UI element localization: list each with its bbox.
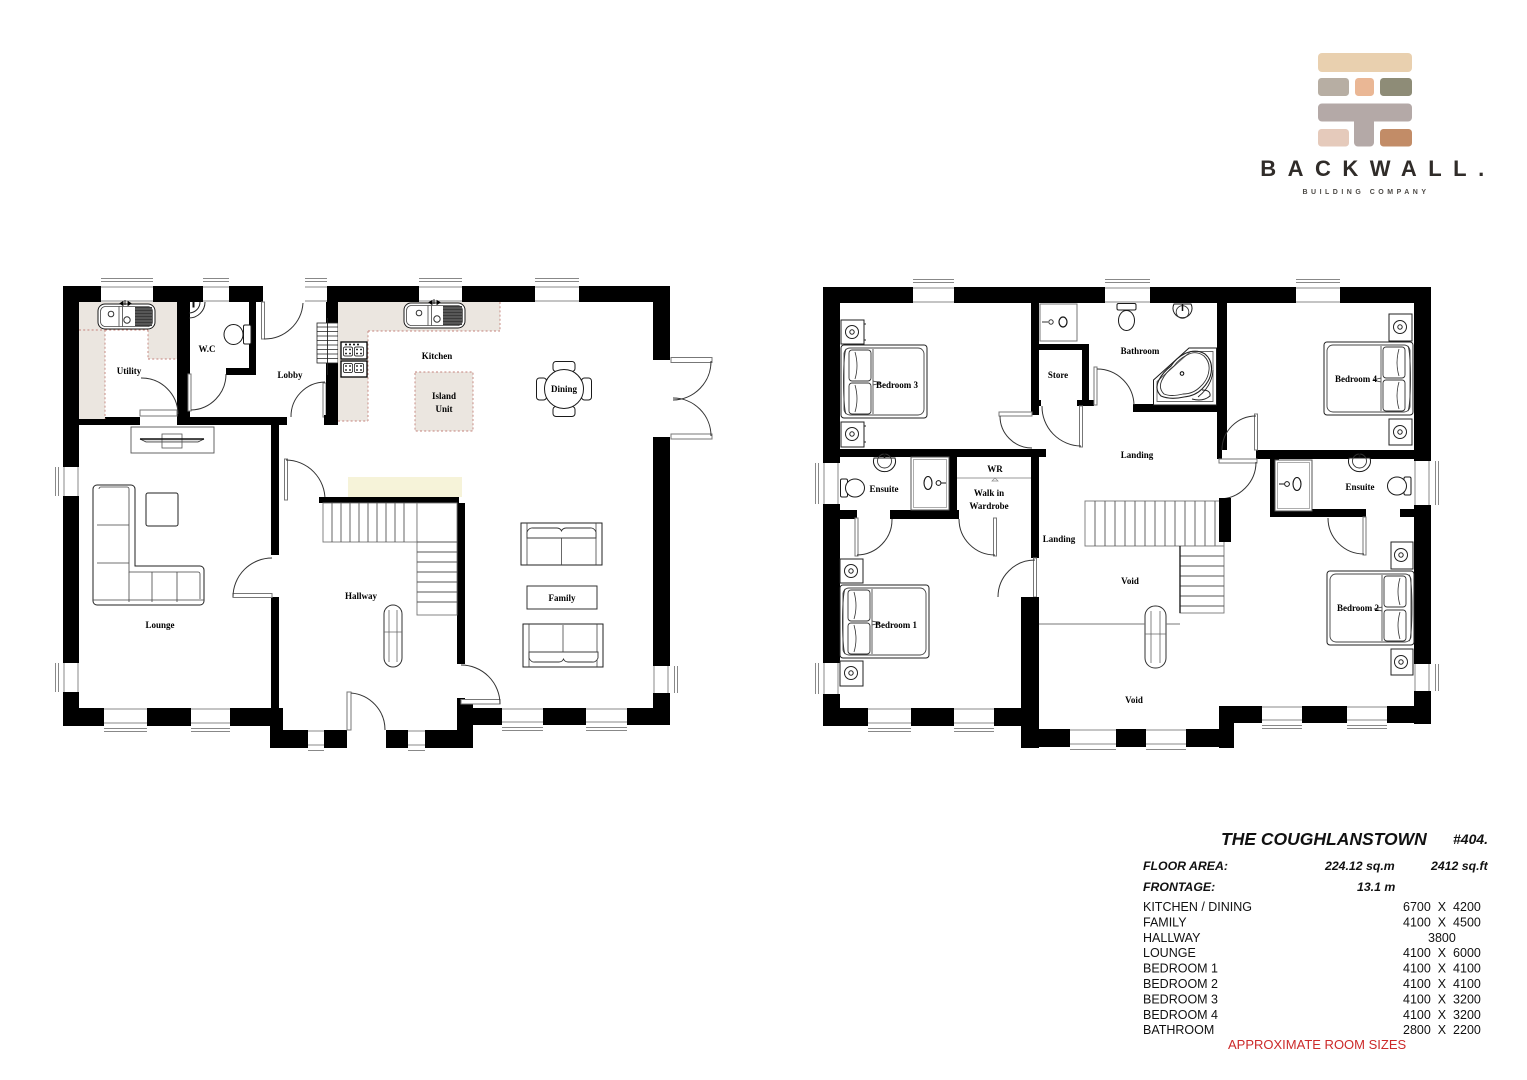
svg-text:224.12 sq.m: 224.12 sq.m [1324, 859, 1395, 873]
svg-text:Bedroom 3: Bedroom 3 [876, 380, 919, 390]
svg-text:Kitchen: Kitchen [422, 351, 453, 361]
svg-text:Unit: Unit [435, 404, 452, 414]
svg-text:2412 sq.ft: 2412 sq.ft [1430, 859, 1489, 873]
svg-text:Family: Family [549, 593, 576, 603]
svg-text:Void: Void [1121, 576, 1139, 586]
svg-text:Dining: Dining [551, 384, 578, 394]
svg-text:FRONTAGE:: FRONTAGE: [1143, 880, 1215, 894]
svg-text:Lounge: Lounge [145, 620, 174, 630]
svg-text:W.C: W.C [199, 344, 216, 354]
svg-text:Store: Store [1048, 370, 1068, 380]
svg-text:THE COUGHLANSTOWN: THE COUGHLANSTOWN [1221, 829, 1427, 849]
svg-text:Bathroom: Bathroom [1121, 346, 1160, 356]
svg-text:Ensuite: Ensuite [869, 484, 898, 494]
svg-text:BEDROOM 2: BEDROOM 2 [1143, 977, 1218, 991]
svg-text:4100 X 4100: 4100 X 4100 [1403, 962, 1481, 976]
svg-text:4100 X 3200: 4100 X 3200 [1403, 1008, 1481, 1022]
svg-text:Landing: Landing [1043, 534, 1076, 544]
svg-text:2800 X 2200: 2800 X 2200 [1403, 1023, 1481, 1037]
svg-text:Utility: Utility [117, 366, 142, 376]
svg-text:BEDROOM 4: BEDROOM 4 [1143, 1008, 1218, 1022]
svg-text:#404.: #404. [1453, 831, 1488, 847]
svg-text:BATHROOM: BATHROOM [1143, 1023, 1214, 1037]
svg-text:BUILDING COMPANY: BUILDING COMPANY [1302, 189, 1429, 196]
svg-text:Island: Island [432, 391, 456, 401]
svg-text:WR: WR [987, 464, 1003, 474]
svg-text:APPROXIMATE ROOM SIZES: APPROXIMATE ROOM SIZES [1228, 1037, 1407, 1052]
svg-text:Bedroom 4: Bedroom 4 [1335, 374, 1378, 384]
svg-text:BEDROOM 1: BEDROOM 1 [1143, 962, 1218, 976]
svg-text:Ensuite: Ensuite [1345, 482, 1374, 492]
svg-text:13.1 m: 13.1 m [1357, 880, 1395, 894]
svg-text:4100 X 4100: 4100 X 4100 [1403, 977, 1481, 991]
svg-text:BACKWALL.: BACKWALL. [1260, 156, 1495, 181]
svg-text:FAMILY: FAMILY [1143, 915, 1187, 929]
svg-text:FLOOR AREA:: FLOOR AREA: [1143, 859, 1228, 873]
svg-text:4100 X 3200: 4100 X 3200 [1403, 992, 1481, 1006]
svg-text:Landing: Landing [1121, 450, 1154, 460]
svg-text:4100 X 6000: 4100 X 6000 [1403, 946, 1481, 960]
svg-text:Void: Void [1125, 695, 1143, 705]
svg-text:Walk in: Walk in [974, 488, 1004, 498]
svg-text:LOUNGE: LOUNGE [1143, 946, 1196, 960]
svg-text:Lobby: Lobby [277, 370, 303, 380]
svg-text:4100 X 4500: 4100 X 4500 [1403, 915, 1481, 929]
svg-text:Bedroom 2: Bedroom 2 [1337, 603, 1380, 613]
svg-text:3800: 3800 [1428, 931, 1456, 945]
svg-text:Wardrobe: Wardrobe [969, 501, 1008, 511]
svg-text:HALLWAY: HALLWAY [1143, 931, 1201, 945]
svg-text:Bedroom 1: Bedroom 1 [875, 620, 918, 630]
svg-text:Hallway: Hallway [345, 591, 378, 601]
svg-text:6700 X 4200: 6700 X 4200 [1403, 900, 1481, 914]
svg-text:BEDROOM 3: BEDROOM 3 [1143, 992, 1218, 1006]
svg-text:KITCHEN / DINING: KITCHEN / DINING [1143, 900, 1252, 914]
